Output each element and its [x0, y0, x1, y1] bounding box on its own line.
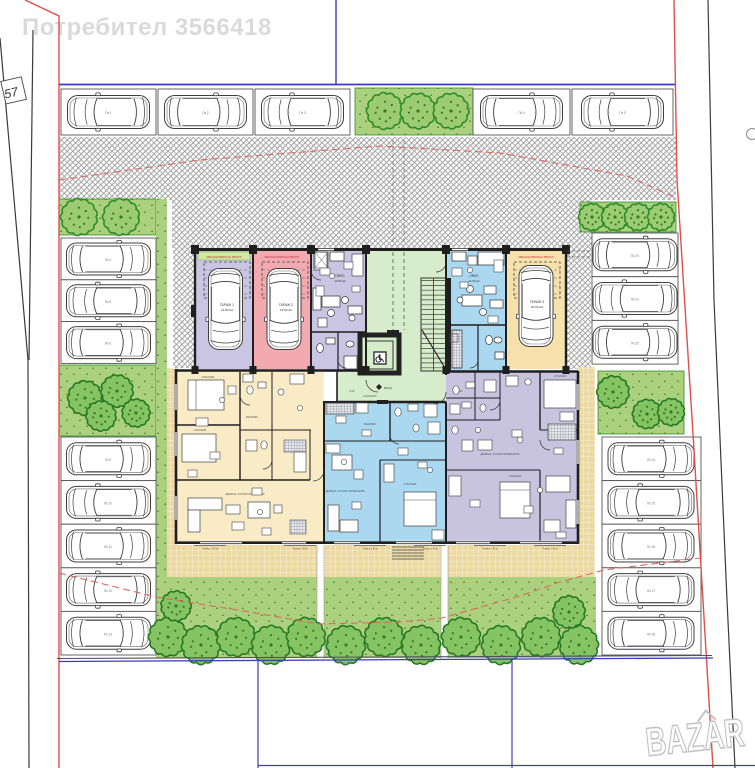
svg-text:Пк 3: Пк 3 — [299, 111, 306, 115]
svg-text:Пк 6: Пк 6 — [105, 342, 112, 346]
svg-text:Пк 4: Пк 4 — [105, 258, 112, 262]
svg-text:Пк 2: Пк 2 — [202, 111, 209, 115]
svg-text:МЕХАНИЗИРАНА ВРАТА: МЕХАНИЗИРАНА ВРАТА — [207, 255, 242, 259]
svg-text:СПАЛНЯ: СПАЛНЯ — [194, 428, 207, 432]
svg-text:Пк 15: Пк 15 — [647, 502, 655, 506]
svg-text:ГАРАЖ 2: ГАРАЖ 2 — [279, 303, 293, 307]
svg-text:СПАЛНЯ: СПАЛНЯ — [554, 374, 566, 378]
svg-text:Пк 9: Пк 9 — [105, 458, 112, 462]
svg-text:ГАРАЖ 3: ГАРАЖ 3 — [530, 300, 544, 304]
svg-text:14.00 м2: 14.00 м2 — [468, 279, 480, 283]
svg-text:Пк 13: Пк 13 — [104, 632, 112, 636]
svg-text:20.00 м2: 20.00 м2 — [531, 305, 543, 309]
svg-text:Пк 20: Пк 20 — [631, 254, 639, 258]
svg-text:Тераса + 8См: Тераса + 8См — [292, 548, 308, 551]
svg-text:Тераса + 8См: Тераса + 8См — [202, 548, 218, 551]
svg-text:Пк 12: Пк 12 — [104, 589, 112, 593]
svg-text:БАНЯ/WC: БАНЯ/WC — [364, 422, 376, 426]
svg-text:ДНЕВНА, КУХНЯ ТРАПЕЗАРИЯ: ДНЕВНА, КУХНЯ ТРАПЕЗАРИЯ — [326, 489, 365, 493]
svg-text:СПАЛНЯ: СПАЛНЯ — [404, 482, 417, 486]
svg-text:13.90 м2: 13.90 м2 — [334, 279, 346, 283]
svg-text:ОФИС: ОФИС — [335, 274, 345, 278]
svg-text:Пк 5: Пк 5 — [105, 300, 112, 304]
svg-text:Пк 11: Пк 11 — [104, 545, 112, 549]
svg-text:Пк 17: Пк 17 — [647, 589, 655, 593]
svg-text:Пк 4: Пк 4 — [518, 111, 525, 115]
svg-text:Пк 16: Пк 16 — [647, 545, 655, 549]
svg-text:СПАЛНЯ: СПАЛНЯ — [509, 474, 522, 478]
svg-text:Пк 10: Пк 10 — [104, 502, 112, 506]
svg-text:Тераса + 8См: Тераса + 8См — [422, 548, 438, 551]
svg-text:Пк 14: Пк 14 — [647, 458, 655, 462]
svg-text:Тераса + 8См: Тераса + 8См — [482, 548, 498, 551]
svg-text:19.50 м2: 19.50 м2 — [280, 308, 292, 312]
svg-text:СПАЛНЯ: СПАЛНЯ — [202, 375, 215, 379]
svg-text:МЕХАНИЗИРАНА ВРАТА: МЕХАНИЗИРАНА ВРАТА — [519, 255, 554, 259]
svg-text:Пк 1: Пк 1 — [105, 111, 112, 115]
svg-text:ВХОД: ВХОД — [384, 386, 392, 390]
svg-text:19.80 м2: 19.80 м2 — [221, 308, 233, 312]
svg-text:Пк 5: Пк 5 — [619, 111, 626, 115]
svg-text:Пк 21: Пк 21 — [631, 298, 639, 302]
svg-text:АСАНСЬОР: АСАНСЬОР — [363, 395, 377, 398]
svg-text:Тераса + 8См: Тераса + 8См — [542, 548, 558, 551]
svg-text:Тераса + 8См: Тераса + 8См — [362, 548, 378, 551]
svg-text:ГАРАЖ 1: ГАРАЖ 1 — [220, 303, 234, 307]
svg-text:МЕХАНИЗИРАНА ВРАТА: МЕХАНИЗИРАНА ВРАТА — [265, 255, 300, 259]
svg-text:6.65: 6.65 — [349, 389, 355, 393]
svg-text:Пк 22: Пк 22 — [631, 341, 639, 345]
svg-text:Пк 18: Пк 18 — [647, 632, 655, 636]
svg-text:ДНЕВНА, КУХНЯ ТРАПЕЗАРИЯ: ДНЕВНА, КУХНЯ ТРАПЕЗАРИЯ — [481, 452, 520, 456]
svg-text:ОФИС: ОФИС — [469, 274, 479, 278]
svg-text:БАНЯ/WC: БАНЯ/WC — [246, 415, 258, 419]
